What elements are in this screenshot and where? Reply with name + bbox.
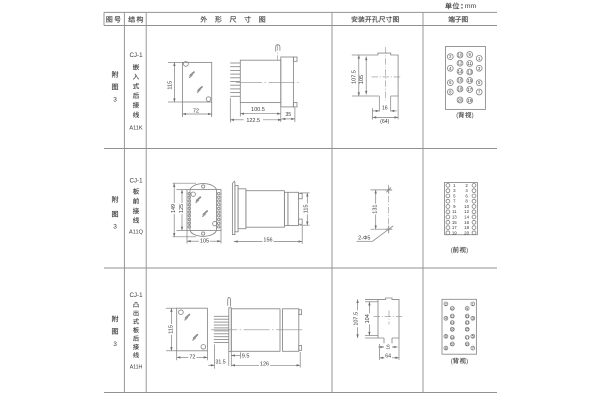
svg-text:105: 105 [200,238,209,244]
svg-text:5: 5 [472,335,474,339]
svg-text:12: 12 [458,61,463,66]
svg-text:15: 15 [452,220,457,225]
svg-text:3: 3 [113,341,117,348]
svg-text:3: 3 [113,96,117,103]
svg-text:CJ-1: CJ-1 [129,292,143,299]
svg-text:mm: mm [465,3,477,10]
svg-text:(: ( [451,248,453,254]
svg-text:72: 72 [193,109,199,115]
svg-text:10: 10 [458,53,463,58]
svg-text:(: ( [456,113,458,119]
svg-text:A11H: A11H [130,364,143,370]
svg-text:156: 156 [263,238,272,244]
svg-text:): ) [466,248,468,254]
svg-text:1: 1 [472,302,474,306]
svg-text:): ) [466,359,468,365]
svg-text:20: 20 [450,342,454,346]
svg-text:CJ-1: CJ-1 [129,177,143,184]
svg-text:12: 12 [464,209,469,214]
svg-text:131: 131 [373,205,379,214]
svg-text:12: 12 [450,315,454,319]
svg-text:20: 20 [458,98,463,103]
svg-text:(64): (64) [380,119,389,125]
svg-text:7: 7 [472,347,474,351]
svg-text:13: 13 [467,70,472,75]
svg-text:3: 3 [113,223,117,230]
svg-text:17: 17 [467,87,472,92]
svg-text:14: 14 [450,321,454,325]
svg-text:8: 8 [445,347,447,351]
svg-text:2: 2 [445,302,447,306]
svg-text:4: 4 [445,317,447,321]
svg-text:16: 16 [458,78,463,83]
svg-text:11: 11 [468,61,473,66]
svg-text:15: 15 [465,328,469,332]
svg-text:122.5: 122.5 [246,118,260,124]
svg-text:16: 16 [382,105,388,111]
svg-text:3: 3 [472,317,474,321]
svg-text:31.5: 31.5 [216,360,226,366]
svg-text:2-Φ5: 2-Φ5 [358,235,370,241]
svg-text:A11Q: A11Q [129,230,144,236]
svg-text:35: 35 [285,112,291,118]
svg-text:16: 16 [464,220,469,225]
svg-text:9.5: 9.5 [242,354,250,360]
svg-text:105: 105 [359,75,365,84]
svg-text:18: 18 [450,336,454,340]
svg-text:15: 15 [467,78,472,83]
svg-text:18: 18 [458,87,463,92]
svg-text:115: 115 [167,81,173,90]
svg-text:107.5: 107.5 [352,70,358,84]
svg-text:A11K: A11K [129,126,143,132]
svg-text:19: 19 [467,98,472,103]
svg-text:13: 13 [452,215,457,220]
svg-text:64: 64 [385,354,391,360]
svg-text:16: 16 [385,344,391,350]
svg-text:19: 19 [452,230,457,235]
svg-text:115: 115 [303,205,309,214]
svg-text:): ) [472,113,474,119]
svg-text:149: 149 [171,204,177,213]
svg-text:19: 19 [465,342,469,346]
svg-text:10: 10 [450,307,454,311]
svg-text:9: 9 [466,307,468,311]
svg-text:126: 126 [260,361,269,367]
svg-text:14: 14 [458,69,463,74]
svg-text:6: 6 [445,335,447,339]
svg-text:CJ-1: CJ-1 [129,52,143,59]
svg-text:13: 13 [465,321,469,325]
svg-text:17: 17 [465,336,469,340]
svg-text:107.5: 107.5 [353,312,359,326]
svg-text:(: ( [451,359,453,365]
svg-text:100.5: 100.5 [251,107,265,113]
svg-text:104: 104 [365,314,371,323]
svg-text:125: 125 [179,204,185,213]
svg-text:11: 11 [452,209,457,214]
svg-text:14: 14 [464,215,469,220]
svg-text:11: 11 [465,315,469,319]
svg-text:115: 115 [168,325,174,334]
svg-text:20: 20 [464,230,469,235]
svg-text:72: 72 [189,354,195,360]
svg-text:16: 16 [450,328,454,332]
